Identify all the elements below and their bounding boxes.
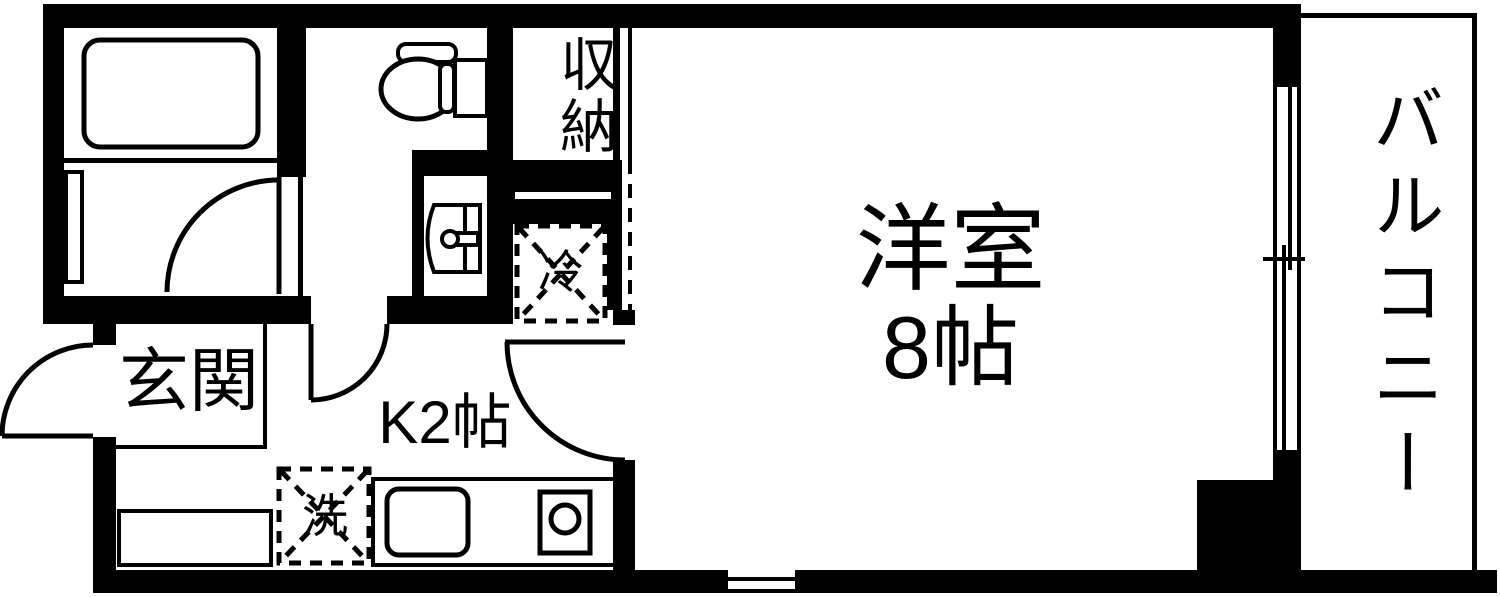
wall-corner-pillar bbox=[1197, 480, 1301, 570]
sliding-window-icon bbox=[1263, 85, 1305, 450]
window-frame-left bbox=[1273, 85, 1277, 450]
wall-washbasin-left bbox=[412, 150, 424, 296]
window-frame-right bbox=[1297, 85, 1301, 450]
bottom-window-pane-lower bbox=[728, 581, 795, 589]
wall-fridge-right bbox=[607, 160, 622, 310]
walls bbox=[43, 4, 1497, 593]
wall-top bbox=[43, 4, 1301, 28]
washbasin-faucet-knob bbox=[442, 231, 458, 247]
storage-label: 収納 bbox=[516, 30, 612, 162]
wall-left-upper bbox=[43, 4, 64, 324]
bottom-window-pane-upper bbox=[728, 569, 795, 577]
kitchen-label: K2帖 bbox=[370, 393, 520, 453]
bathroom-door-arc bbox=[167, 180, 279, 292]
wall-service-bottom bbox=[43, 296, 513, 324]
toilet-door-arc bbox=[311, 324, 387, 400]
shoe-cabinet bbox=[119, 511, 271, 565]
entrance-label: 玄関 bbox=[108, 346, 270, 416]
balcony-top-line bbox=[1300, 13, 1477, 18]
refrigerator-label: 冷 bbox=[517, 249, 605, 295]
window-sash-lower bbox=[1282, 245, 1286, 450]
kitchen-sink-icon bbox=[387, 489, 468, 555]
bathroom-divider-line bbox=[64, 158, 277, 163]
toilet-cistern bbox=[455, 60, 487, 116]
bathroom bbox=[64, 40, 303, 296]
storage-band-slit bbox=[515, 192, 611, 199]
sliding-door-line-outer bbox=[628, 25, 632, 160]
toilet-seat bbox=[440, 64, 454, 112]
entry-door-arc bbox=[2, 345, 93, 436]
balcony-right-line bbox=[1472, 13, 1477, 570]
bathroom-door-frame-line bbox=[298, 177, 303, 296]
wall-channel-end bbox=[613, 310, 635, 325]
balcony-label: バルコニー bbox=[1347, 62, 1437, 532]
window-meeting-tick bbox=[1263, 257, 1305, 261]
stove-icon bbox=[540, 492, 590, 553]
floor-plan: 玄関 K2帖 洗 冷 収納 洋室 8帖 バルコニー bbox=[0, 0, 1500, 597]
main-room-label: 洋室 8帖 bbox=[828, 203, 1073, 392]
stove-burner bbox=[551, 505, 579, 533]
washer-label: 洗 bbox=[279, 493, 371, 539]
kitchen-door-arc bbox=[507, 342, 625, 460]
wall-toilet-right bbox=[487, 28, 513, 324]
floor-plan-drawing bbox=[0, 0, 1500, 597]
bathroom-counter bbox=[66, 172, 82, 282]
washbasin bbox=[428, 205, 481, 272]
window-sash-upper bbox=[1288, 87, 1292, 270]
wall-right-bottom-stub bbox=[1273, 450, 1301, 480]
main-room-size: 8帖 bbox=[828, 304, 1073, 392]
main-room-name: 洋室 bbox=[828, 203, 1073, 298]
genkan-bottom-line bbox=[116, 445, 267, 449]
wall-right-top-stub bbox=[1273, 4, 1301, 87]
bathtub-icon bbox=[84, 40, 258, 147]
toilet-door-opening bbox=[311, 296, 387, 324]
kitchen-counter bbox=[373, 479, 633, 565]
